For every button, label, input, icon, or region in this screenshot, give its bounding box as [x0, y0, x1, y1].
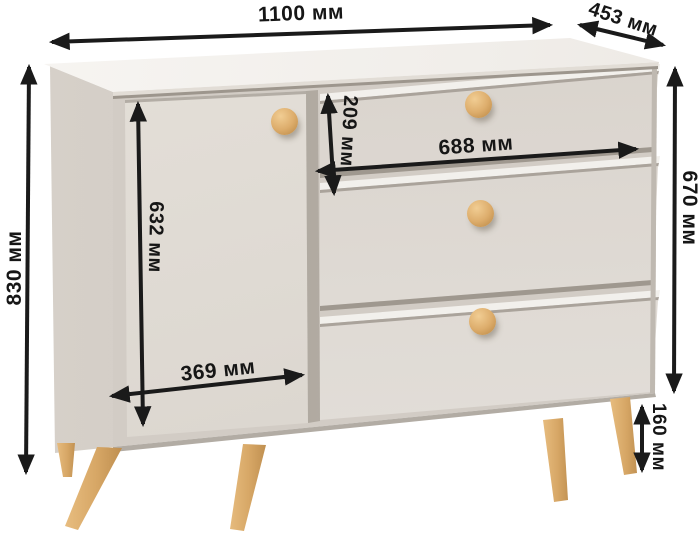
width-arrow — [52, 25, 550, 42]
dimension-arrows-overlay — [0, 0, 700, 540]
leg-height-label: 160 мм — [647, 403, 669, 471]
dimension-diagram: 1100 мм 453 мм 830 мм 670 мм 632 мм 209 … — [0, 0, 700, 540]
drawer-height-arrow — [328, 96, 334, 193]
body-height-arrow — [674, 69, 675, 391]
width-label: 1100 мм — [258, 1, 345, 28]
door-height-label: 632 мм — [143, 201, 167, 273]
drawer-height-label: 209 мм — [335, 95, 362, 168]
height-label: 830 мм — [3, 231, 27, 306]
body-height-label: 670 мм — [677, 171, 700, 246]
